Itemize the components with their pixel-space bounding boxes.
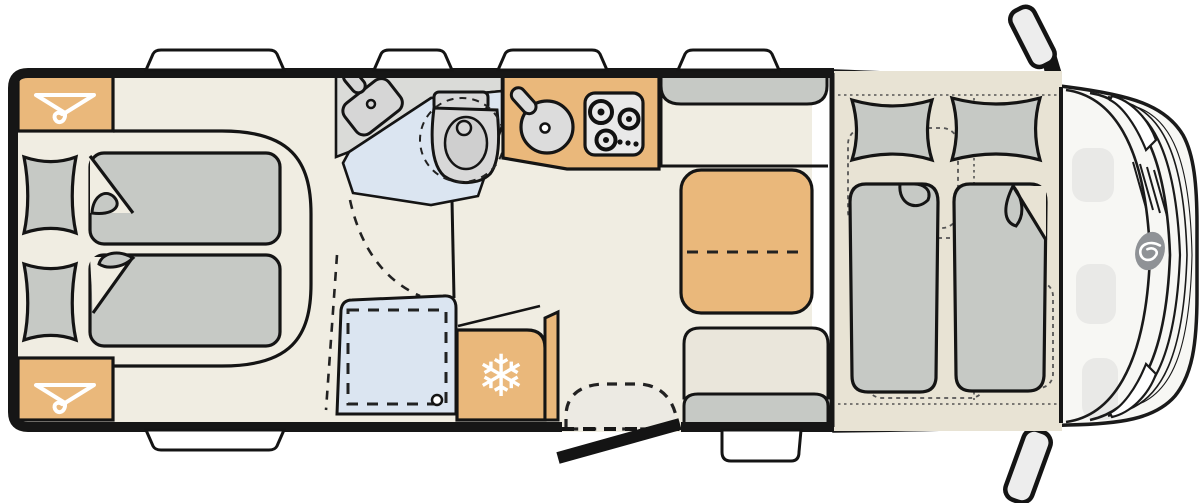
entrance: [558, 384, 681, 458]
side-mirror-bottom: [1002, 426, 1054, 503]
side-window: [146, 430, 801, 461]
side-mirror-top: [1007, 3, 1062, 78]
entrance-step: [566, 384, 678, 429]
dinette-table: [681, 170, 812, 313]
kitchen: [503, 73, 659, 169]
snowflake-icon: ❄: [477, 342, 526, 410]
wardrobe-rear-top: [18, 76, 113, 131]
dinette-backrest-bottom: [684, 394, 828, 425]
fridge-side-cabinet: [545, 312, 558, 420]
dinette-backrest-top: [661, 76, 827, 104]
floorplan-canvas: ❄: [0, 0, 1200, 503]
dinette-seat-bottom: [684, 328, 828, 398]
drop-down-bed-zone: [834, 71, 1062, 431]
shower-drain-icon: [432, 395, 442, 405]
hob: [585, 93, 643, 155]
shower: [337, 296, 456, 414]
roof-window: [146, 50, 779, 70]
cab-door-step: [722, 430, 801, 461]
